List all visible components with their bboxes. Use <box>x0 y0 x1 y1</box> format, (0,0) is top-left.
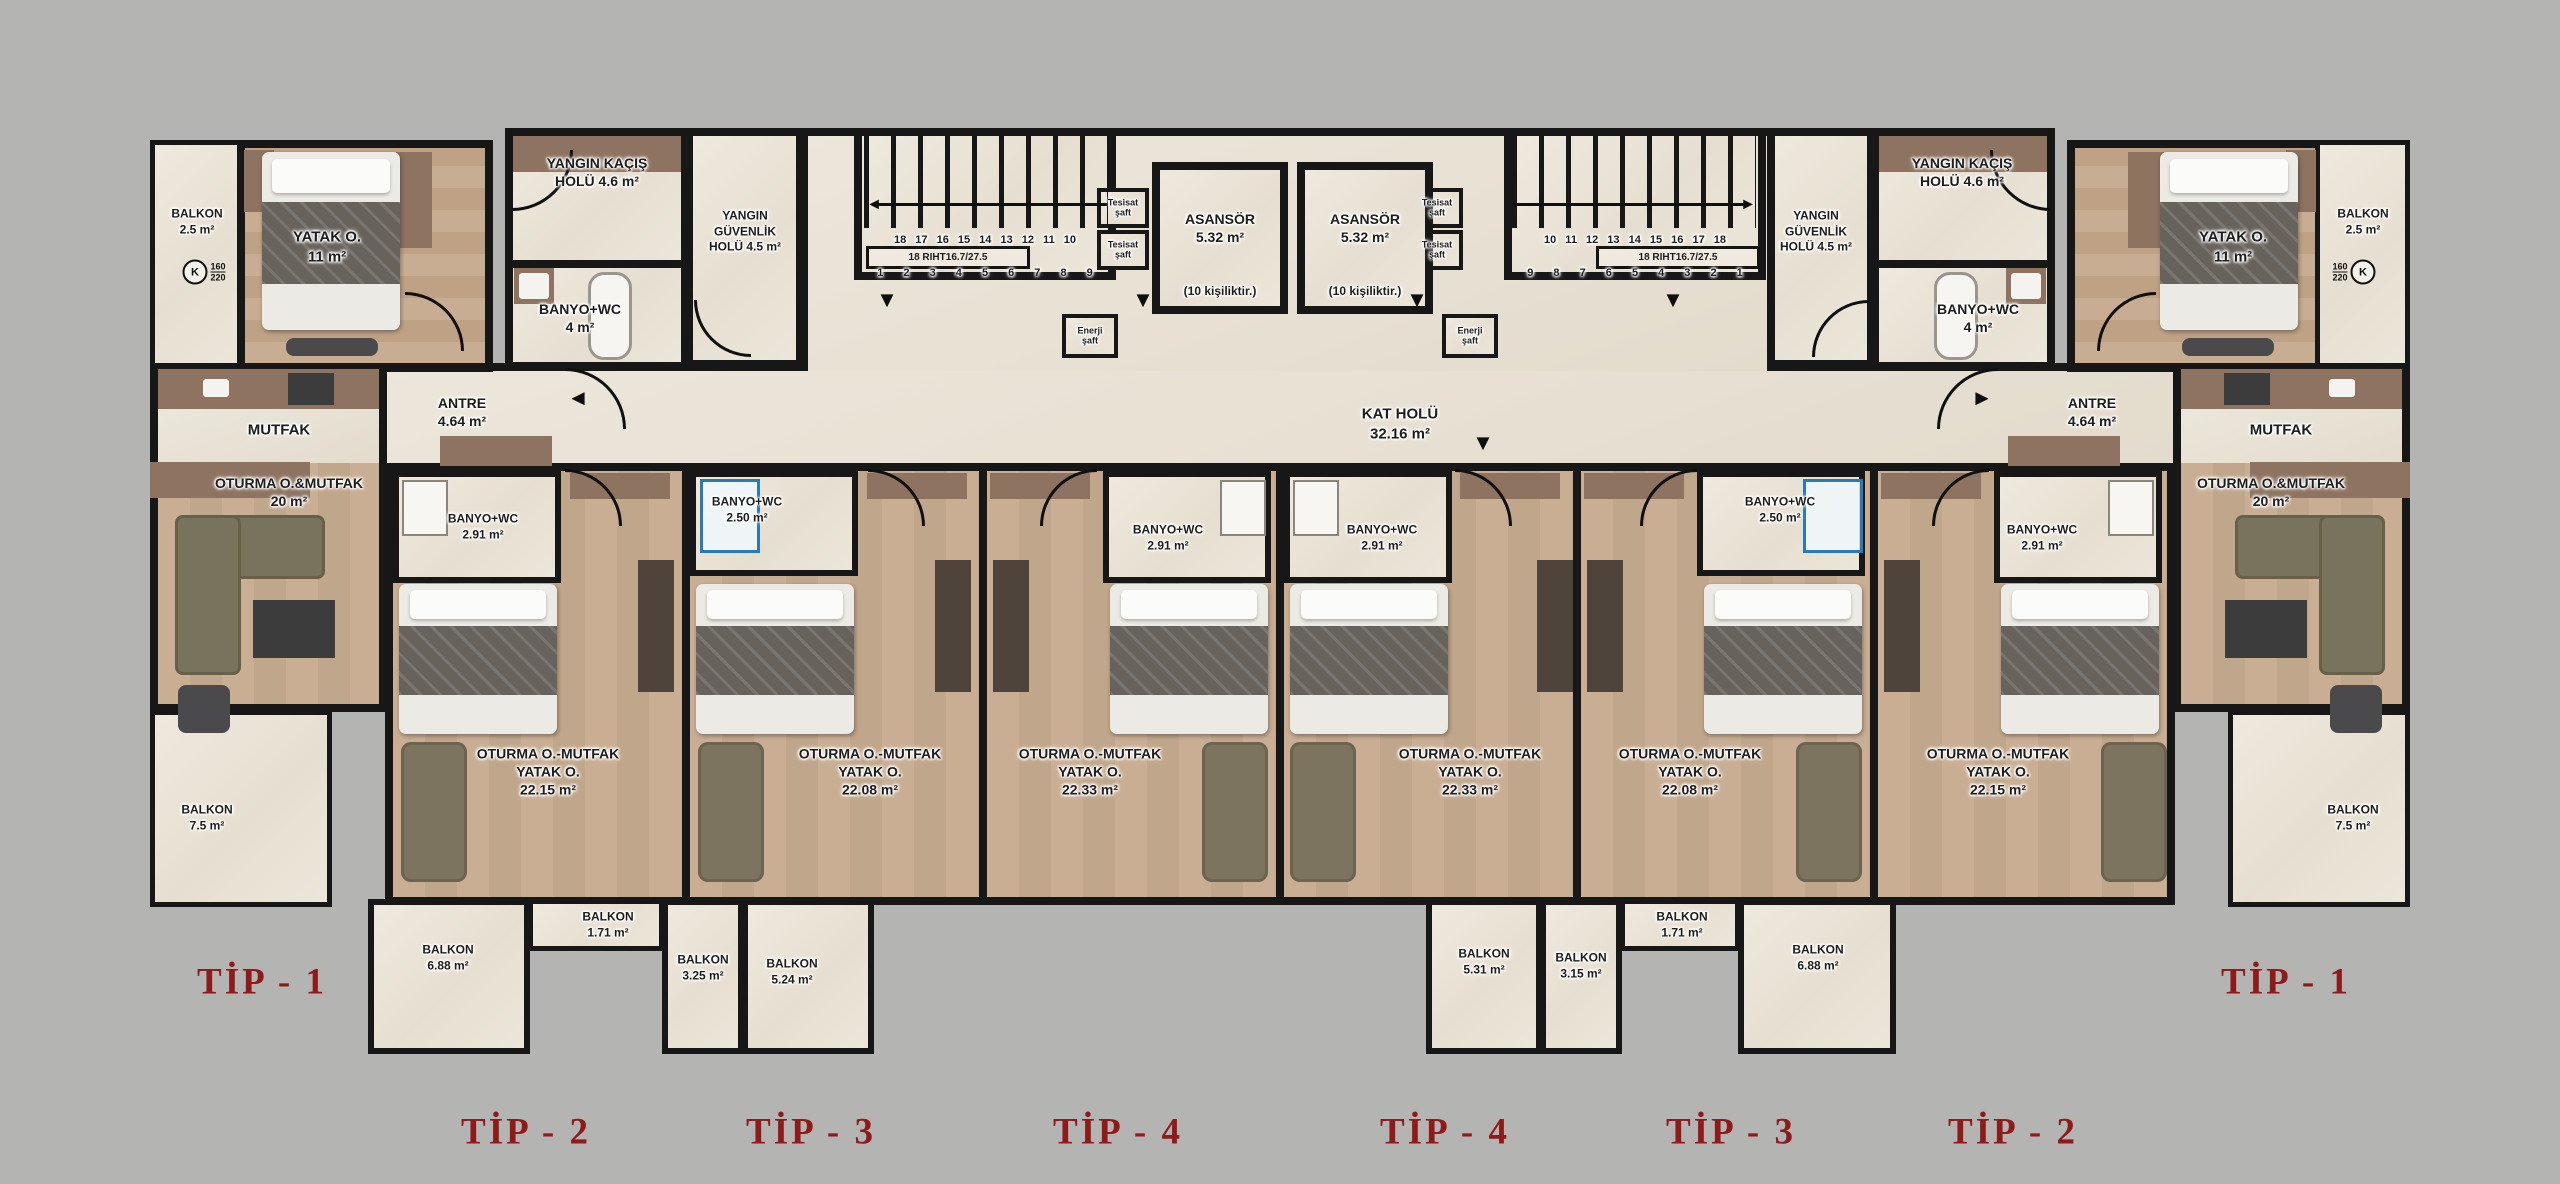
label-balcony-bottom: BALKON 3.15 m² <box>1555 950 1606 981</box>
stair-treads <box>864 136 1108 228</box>
label-unit-bath: BANYO+WC 2.91 m² <box>448 511 518 542</box>
stove <box>288 373 334 405</box>
bed <box>1704 584 1862 734</box>
k-size-top: 160 <box>2332 261 2347 272</box>
wardrobe <box>396 152 432 248</box>
label-fire-escape-right: YANGIN KAÇIŞ HOLÜ 4.6 m² <box>1912 154 2013 190</box>
kitchen-sink <box>2324 374 2360 402</box>
stair-riht-label: 18 RIHT16.7/27.5 <box>1639 252 1718 263</box>
balcony-bottom <box>368 899 530 1054</box>
label-balcony-bottom: BALKON 5.31 m² <box>1458 946 1509 977</box>
sofa <box>401 742 467 882</box>
label-bathroom-4m-right: BANYO+WC 4 m² <box>1937 300 2019 336</box>
stair-arrow: ► <box>1740 196 1756 214</box>
bed <box>1290 584 1448 734</box>
bed <box>1110 584 1268 734</box>
stair-treads <box>1512 136 1756 228</box>
kitchen-counter <box>2181 369 2402 409</box>
stair-step-numbers: 1 2 3 4 5 6 7 8 9 <box>877 266 1093 280</box>
balcony-top-left <box>150 140 245 372</box>
flow-arrow: ▼ <box>1406 287 1428 313</box>
wall <box>1767 363 2175 371</box>
sofa <box>175 515 241 675</box>
label-bathroom-4m-left: BANYO+WC 4 m² <box>539 300 621 336</box>
type-label-tip4-right: TİP - 4 <box>1380 1111 1510 1154</box>
kitchen-counter <box>158 369 379 409</box>
kitchenette <box>935 560 971 692</box>
label-unit-living: OTURMA O.-MUTFAK YATAK O. 22.33 m² <box>1399 745 1542 800</box>
shower <box>402 480 448 536</box>
label-kitchen-right: MUTFAK <box>2250 420 2313 440</box>
label-balcony-bottom: BALKON 6.88 m² <box>1792 942 1843 973</box>
shower <box>2108 480 2154 536</box>
label-balcony-side-right: BALKON 7.5 m² <box>2327 802 2378 833</box>
label-entry-right: ANTRE 4.64 m² <box>2068 394 2116 430</box>
balcony-bottom <box>1738 899 1896 1054</box>
label-unit-living: OTURMA O.-MUTFAK YATAK O. 22.15 m² <box>1927 745 2070 800</box>
kitchen-sink <box>198 374 234 402</box>
kitchenette <box>1587 560 1623 692</box>
coffee-table <box>253 600 335 658</box>
type-label-tip4-left: TİP - 4 <box>1053 1111 1183 1154</box>
stair-direction-line <box>872 203 1108 206</box>
label-balcony-side-left: BALKON 7.5 m² <box>181 802 232 833</box>
bed <box>2001 584 2159 734</box>
label-entry-left: ANTRE 4.64 m² <box>438 394 486 430</box>
type-label-tip1-left: TİP - 1 <box>197 961 327 1004</box>
sofa <box>1290 742 1356 882</box>
label-elevator-right: ASANSÖR 5.32 m² <box>1330 210 1400 246</box>
flow-arrow: ► <box>1971 385 1993 411</box>
label-shaft: Tesisat şaft <box>1108 198 1138 219</box>
label-shaft: Tesisat şaft <box>1422 240 1452 261</box>
door-size-marker: K 160220 <box>182 260 225 285</box>
bed-bench <box>2182 338 2274 356</box>
flow-arrow: ▼ <box>1132 287 1154 313</box>
wall <box>385 363 808 371</box>
sofa <box>698 742 764 882</box>
label-fire-security-right: YANGIN GÜVENLİK HOLÜ 4.5 m² <box>1780 209 1852 256</box>
label-fire-security-left: YANGIN GÜVENLİK HOLÜ 4.5 m² <box>709 209 781 256</box>
sofa <box>1796 742 1862 882</box>
flow-arrow: ▼ <box>1472 430 1494 456</box>
type-label-tip2-left: TİP - 2 <box>461 1111 591 1154</box>
stair-riht-label: 18 RIHT16.7/27.5 <box>909 252 988 263</box>
label-unit-bath: BANYO+WC 2.50 m² <box>712 494 782 525</box>
corridor <box>385 363 2175 470</box>
label-balcony-top-right: BALKON 2.5 m² <box>2337 206 2388 237</box>
k-circle: K <box>2351 260 2376 285</box>
type-label-tip2-right: TİP - 2 <box>1948 1111 2078 1154</box>
label-shaft: Tesisat şaft <box>1422 198 1452 219</box>
label-balcony-bottom: BALKON 1.71 m² <box>1656 909 1707 940</box>
k-size-bottom: 220 <box>210 273 225 283</box>
shower <box>1293 480 1339 536</box>
balcony-top-right <box>2315 140 2410 372</box>
label-kitchen-left: MUTFAK <box>248 420 311 440</box>
sofa <box>2101 742 2167 882</box>
label-unit-living: OTURMA O.-MUTFAK YATAK O. 22.15 m² <box>477 745 620 800</box>
label-unit-bath: BANYO+WC 2.91 m² <box>2007 522 2077 553</box>
label-bedroom-right: YATAK O. 11 m² <box>2199 228 2267 267</box>
kitchenette <box>1884 560 1920 692</box>
label-balcony-bottom: BALKON 1.71 m² <box>582 909 633 940</box>
label-elevator-capacity: (10 kişiliktir.) <box>1184 284 1257 300</box>
label-unit-bath: BANYO+WC 2.50 m² <box>1745 494 1815 525</box>
bed <box>399 584 557 734</box>
label-floor-hall: KAT HOLÜ 32.16 m² <box>1362 405 1438 444</box>
sofa <box>2319 515 2385 675</box>
label-unit-living: OTURMA O.-MUTFAK YATAK O. 22.08 m² <box>1619 745 1762 800</box>
door-size-marker: 160220 K <box>2332 260 2375 285</box>
label-living-right: OTURMA O.&MUTFAK 20 m² <box>2197 474 2345 510</box>
label-shaft: Tesisat şaft <box>1108 240 1138 261</box>
stair-step-numbers: 10 11 12 13 14 15 16 17 18 <box>1544 233 1726 247</box>
label-bedroom-left: YATAK O. 11 m² <box>293 228 361 267</box>
stair-step-numbers: 18 17 16 15 14 13 12 11 10 <box>894 233 1076 247</box>
type-label-tip3-left: TİP - 3 <box>746 1111 876 1154</box>
balcony-side-right <box>2228 710 2410 907</box>
sink <box>514 268 554 304</box>
label-balcony-bottom: BALKON 5.24 m² <box>766 956 817 987</box>
bed-bench <box>286 338 378 356</box>
entry-closet <box>440 436 552 466</box>
balcony-side-left <box>150 710 332 907</box>
label-shaft: Enerji şaft <box>1077 326 1102 347</box>
shower <box>1220 480 1266 536</box>
type-label-tip1-right: TİP - 1 <box>2221 961 2351 1004</box>
kitchenette <box>1537 560 1573 692</box>
label-elevator-left: ASANSÖR 5.32 m² <box>1185 210 1255 246</box>
label-balcony-top-left: BALKON 2.5 m² <box>171 206 222 237</box>
floor-plan: ◄ 18 17 16 15 14 13 12 11 10 18 RIHT16.7… <box>0 0 2560 1184</box>
bed <box>696 584 854 734</box>
kitchenette <box>638 560 674 692</box>
armchair <box>178 685 230 733</box>
sink <box>2006 268 2046 304</box>
flow-arrow: ◄ <box>567 385 589 411</box>
k-size: 160220 <box>2332 261 2347 283</box>
stair-step-numbers: 9 8 7 6 5 4 3 2 1 <box>1527 266 1743 280</box>
label-unit-living: OTURMA O.-MUTFAK YATAK O. 22.08 m² <box>799 745 942 800</box>
flow-arrow: ▼ <box>1662 287 1684 313</box>
label-fire-escape-left: YANGIN KAÇIŞ HOLÜ 4.6 m² <box>547 154 648 190</box>
stair-direction-line <box>1512 203 1748 206</box>
label-shaft: Enerji şaft <box>1457 326 1482 347</box>
label-unit-living: OTURMA O.-MUTFAK YATAK O. 22.33 m² <box>1019 745 1162 800</box>
stove <box>2224 373 2270 405</box>
k-size: 160220 <box>210 261 225 283</box>
label-unit-bath: BANYO+WC 2.91 m² <box>1133 522 1203 553</box>
sofa <box>1202 742 1268 882</box>
kitchenette <box>993 560 1029 692</box>
label-elevator-capacity: (10 kişiliktir.) <box>1329 284 1402 300</box>
coffee-table <box>2225 600 2307 658</box>
wardrobe <box>2128 152 2164 248</box>
entry-closet <box>2008 436 2120 466</box>
k-circle: K <box>182 260 207 285</box>
flow-arrow: ▼ <box>876 287 898 313</box>
stair-arrow: ◄ <box>866 196 882 214</box>
label-balcony-bottom: BALKON 3.25 m² <box>677 952 728 983</box>
label-living-left: OTURMA O.&MUTFAK 20 m² <box>215 474 363 510</box>
label-unit-bath: BANYO+WC 2.91 m² <box>1347 522 1417 553</box>
label-balcony-bottom: BALKON 6.88 m² <box>422 942 473 973</box>
k-size-bottom: 220 <box>2332 273 2347 283</box>
type-label-tip3-right: TİP - 3 <box>1666 1111 1796 1154</box>
armchair <box>2330 685 2382 733</box>
k-size-top: 160 <box>210 261 225 272</box>
